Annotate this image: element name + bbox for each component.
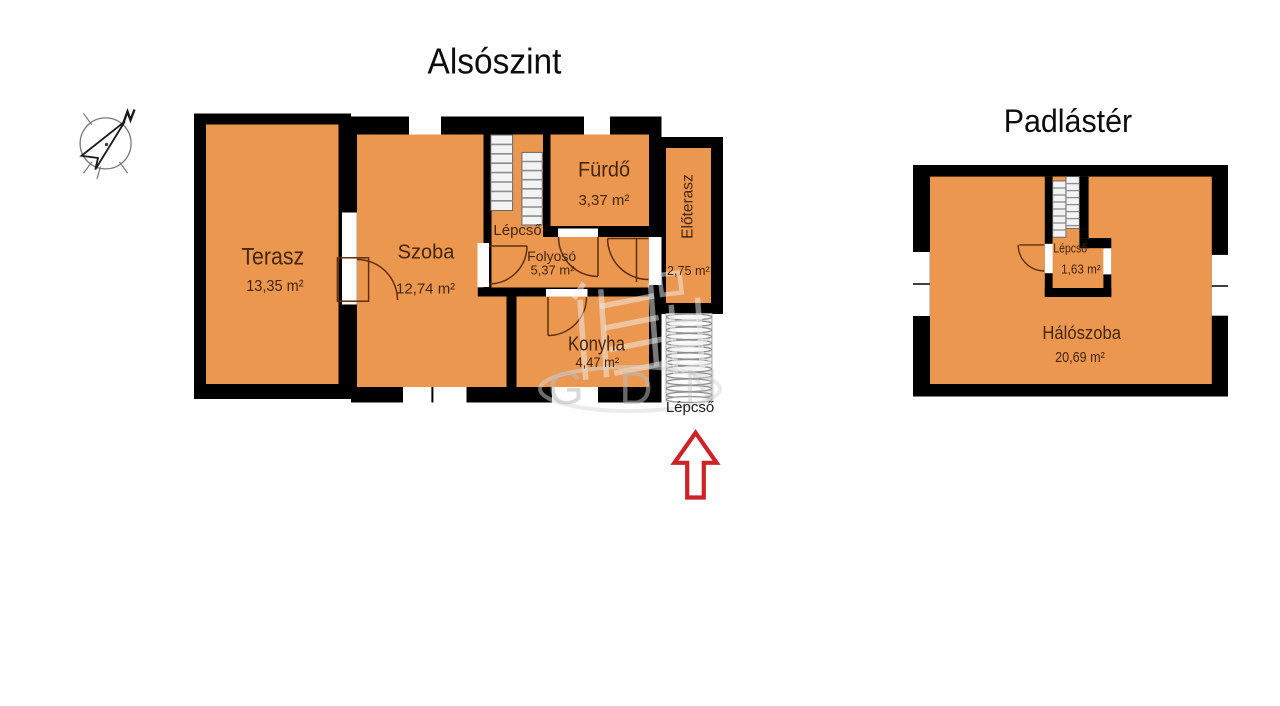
svg-text:Lépcső: Lépcső	[1053, 240, 1087, 255]
svg-text:D: D	[619, 362, 652, 414]
svg-text:Alsószint: Alsószint	[428, 42, 562, 81]
svg-text:4,47 m²: 4,47 m²	[575, 355, 619, 371]
svg-text:13,35 m²: 13,35 m²	[246, 277, 303, 295]
svg-text:Hálószoba: Hálószoba	[1042, 322, 1121, 343]
svg-text:Folyosó: Folyosó	[527, 248, 576, 264]
svg-text:Terasz: Terasz	[241, 242, 304, 269]
svg-text:12,74 m²: 12,74 m²	[396, 281, 455, 298]
svg-text:1,63 m²: 1,63 m²	[1061, 262, 1101, 277]
svg-text:5,37 m²: 5,37 m²	[530, 263, 575, 278]
svg-text:3,37 m²: 3,37 m²	[578, 192, 629, 209]
svg-text:Lépcső: Lépcső	[666, 399, 714, 416]
svg-text:Lépcső: Lépcső	[493, 222, 541, 239]
svg-text:Padlástér: Padlástér	[1004, 103, 1132, 139]
svg-text:Konyha: Konyha	[568, 332, 625, 355]
svg-text:2,75 m²: 2,75 m²	[667, 263, 710, 278]
svg-text:20,69 m²: 20,69 m²	[1055, 349, 1105, 365]
svg-text:Szoba: Szoba	[398, 242, 456, 264]
svg-text:Fürdő: Fürdő	[578, 158, 630, 182]
svg-text:Előterasz: Előterasz	[680, 174, 697, 239]
